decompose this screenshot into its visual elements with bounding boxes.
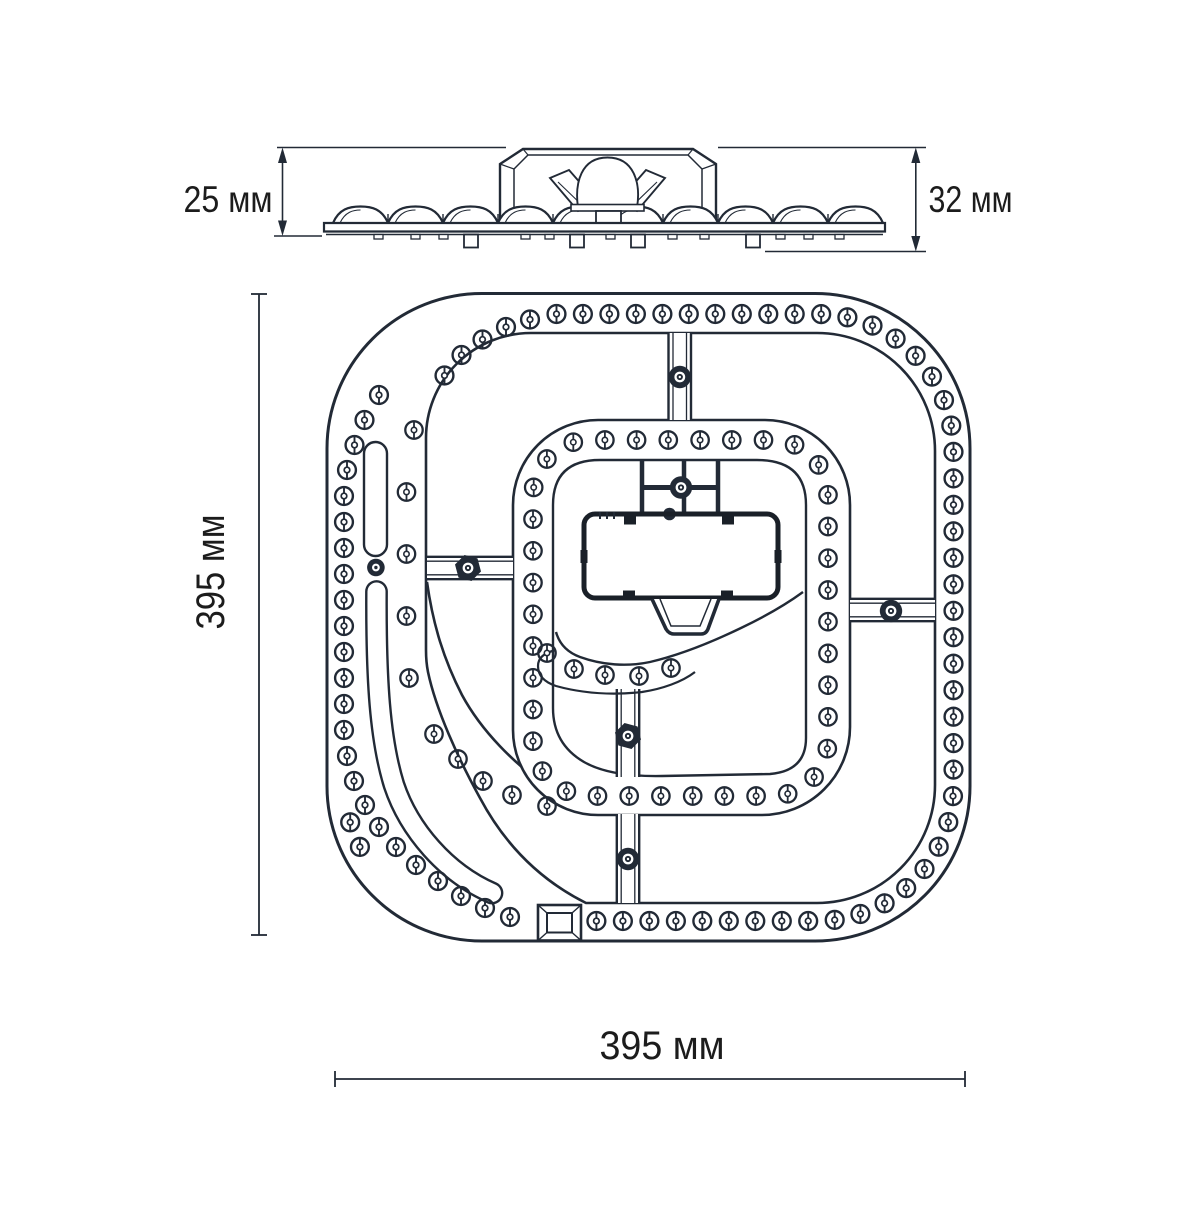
svg-text:25 мм: 25 мм [184, 179, 273, 220]
svg-text:395 мм: 395 мм [189, 515, 233, 630]
svg-text:32 мм: 32 мм [929, 179, 1013, 220]
svg-text:395 мм: 395 мм [600, 1024, 725, 1068]
